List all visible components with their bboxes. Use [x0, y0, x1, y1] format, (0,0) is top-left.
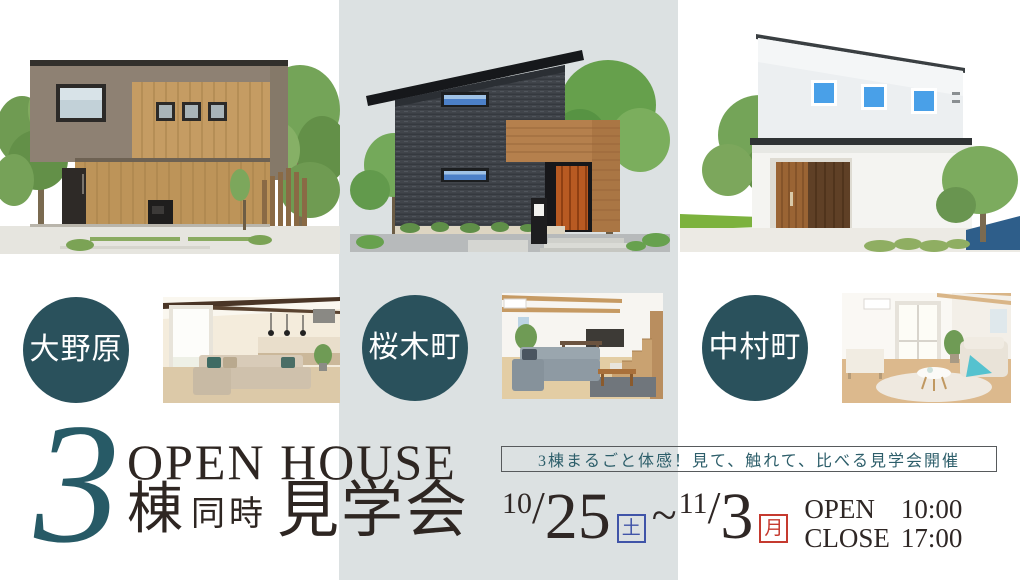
date-range-tilde: ~ — [652, 492, 677, 538]
open-house-poster: 大野原 — [0, 0, 1020, 580]
house-illustration-3 — [680, 0, 1020, 258]
event-banner-text: 3棟まるごと体感！見て、触れて、比べる見学会開催 — [538, 447, 960, 471]
start-month: 10 — [502, 489, 532, 519]
house-illustration-2 — [340, 0, 680, 258]
date-slash: / — [708, 485, 721, 531]
interior-photo-nakamuracho — [842, 293, 1011, 403]
house-photo-ohnohara — [0, 0, 340, 258]
close-time: 17:00 — [901, 525, 963, 552]
location-badge-label: 中村町 — [709, 333, 802, 363]
house-photo-nakamuracho — [680, 0, 1020, 258]
end-month: 11 — [679, 489, 708, 519]
interior-illustration-1 — [163, 297, 340, 403]
date-slash: / — [532, 485, 545, 531]
event-banner: 3棟まるごと体感！見て、触れて、比べる見学会開催 — [501, 446, 997, 472]
end-weekday-badge: 月 — [759, 514, 788, 543]
open-time: 10:00 — [901, 496, 963, 523]
close-hours-row: CLOSE 17:00 — [804, 525, 962, 552]
headline-japanese: 棟 同時 見学会 — [127, 480, 469, 544]
window-large — [56, 84, 106, 122]
open-hours-row: OPEN 10:00 — [804, 496, 962, 523]
start-day: 25 — [545, 484, 611, 550]
end-day: 3 — [720, 484, 753, 550]
interior-illustration-3 — [842, 293, 1011, 403]
start-weekday-badge: 土 — [617, 514, 646, 543]
interior-photo-ohnohara — [163, 297, 340, 403]
small-windows — [156, 102, 227, 121]
opening-hours: OPEN 10:00 CLOSE 17:00 — [804, 496, 962, 552]
house-photo-sakuragicho — [340, 0, 680, 258]
headline-unit: 棟 — [127, 482, 183, 538]
location-badge-sakuragicho: 桜木町 — [362, 295, 468, 401]
location-badge-nakamuracho: 中村町 — [702, 295, 808, 401]
headline-middle: 同時 — [191, 498, 267, 532]
location-badge-label: 桜木町 — [369, 333, 462, 363]
headline-event: 見学会 — [277, 480, 469, 542]
open-label: OPEN — [804, 496, 875, 523]
interior-photo-sakuragicho — [502, 293, 663, 399]
start-weekday: 土 — [622, 519, 641, 538]
end-weekday: 月 — [764, 519, 783, 538]
interior-illustration-2 — [502, 293, 663, 399]
house-illustration-1 — [0, 0, 340, 258]
headline-count: 3 — [34, 398, 120, 570]
schedule-row: 10 / 25 土 ~ 11 / 3 月 OPEN 10:00 CLOSE 17… — [502, 486, 962, 552]
close-label: CLOSE — [804, 525, 890, 552]
location-badge-label: 大野原 — [30, 335, 123, 365]
location-badge-ohnohara: 大野原 — [23, 297, 129, 403]
